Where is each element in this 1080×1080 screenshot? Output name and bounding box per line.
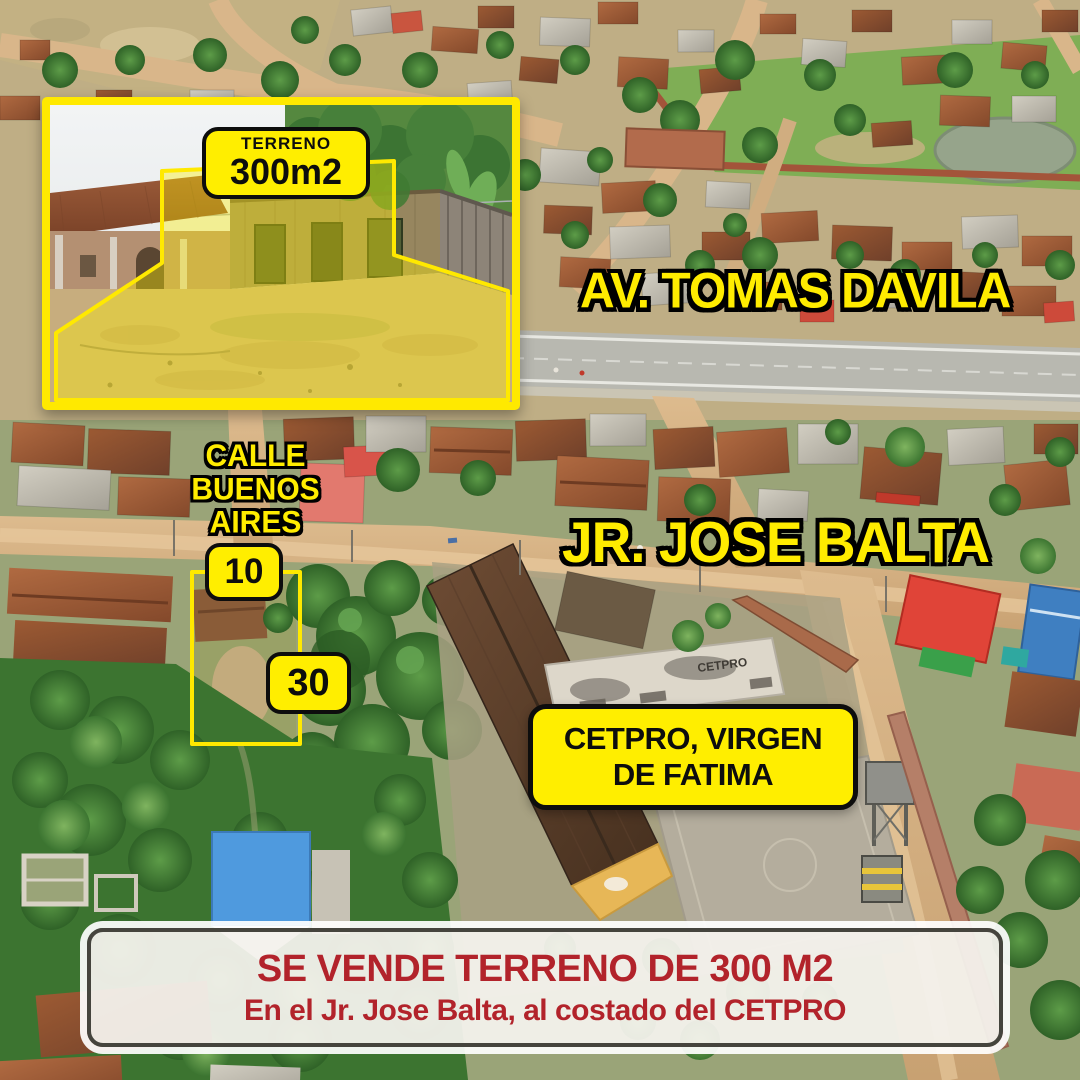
cetpro-poi-line2: DE FATIMA: [613, 757, 773, 793]
street-label-av-tomas-davila: AV. TOMAS DAVILA: [580, 263, 1010, 320]
street-label-calle-buenos-aires: CALLE BUENOS AIRES: [148, 440, 363, 539]
real-estate-ad: CETPRO: [0, 0, 1080, 1080]
property-inset: TERRENO 300m2: [42, 97, 520, 410]
depth-dimension-chip: 30: [266, 652, 351, 714]
terreno-label: TERRENO 300m2: [202, 127, 370, 199]
street-label-calle-line2: AIRES: [148, 506, 363, 539]
sale-banner: SE VENDE TERRENO DE 300 M2 En el Jr. Jos…: [87, 928, 1003, 1047]
banner-title: SE VENDE TERRENO DE 300 M2: [257, 948, 833, 991]
cetpro-poi-label: CETPRO, VIRGEN DE FATIMA: [528, 704, 858, 810]
banner-subtitle: En el Jr. Jose Balta, al costado del CET…: [244, 994, 846, 1028]
street-label-jr-jose-balta: JR. JOSE BALTA: [562, 509, 989, 576]
terreno-label-size: 300m2: [210, 154, 362, 190]
street-label-calle-line1: CALLE BUENOS: [148, 440, 363, 506]
cetpro-poi-line1: CETPRO, VIRGEN: [564, 721, 822, 757]
width-dimension-chip: 10: [205, 543, 283, 601]
